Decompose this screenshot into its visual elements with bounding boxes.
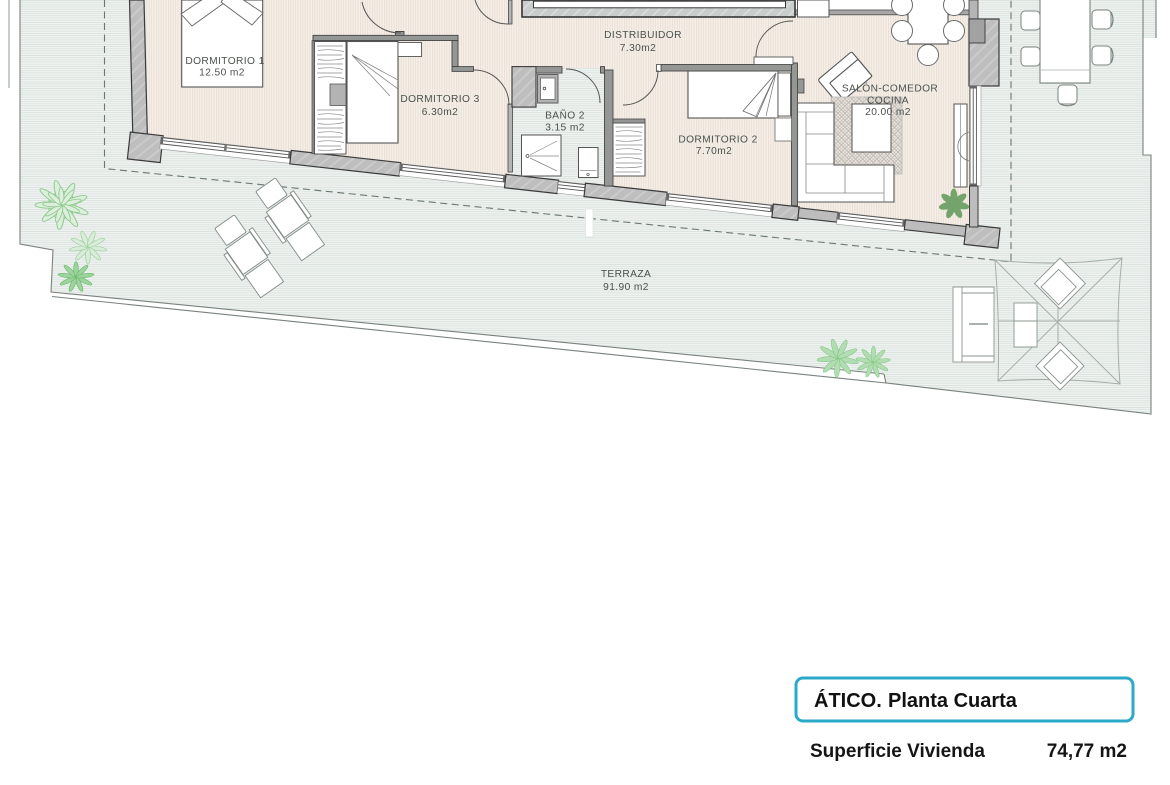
svg-text:DISTRIBUIDOR: DISTRIBUIDOR <box>604 30 682 41</box>
svg-text:ÁTICO.: ÁTICO. <box>814 689 882 712</box>
svg-text:91.90 m2: 91.90 m2 <box>603 282 649 293</box>
svg-text:7.30m2: 7.30m2 <box>620 43 656 54</box>
svg-text:SALÓN-COMEDOR: SALÓN-COMEDOR <box>842 82 938 95</box>
svg-text:BAÑO 2: BAÑO 2 <box>545 109 585 122</box>
svg-text:3.15 m2: 3.15 m2 <box>545 123 585 134</box>
svg-text:DORMITORIO 1: DORMITORIO 1 <box>185 56 264 67</box>
svg-text:20.00 m2: 20.00 m2 <box>865 107 911 118</box>
svg-text:74,77 m2: 74,77 m2 <box>1047 741 1127 762</box>
svg-text:DORMITORIO 2: DORMITORIO 2 <box>678 135 757 146</box>
svg-text:DORMITORIO 3: DORMITORIO 3 <box>400 94 479 105</box>
svg-text:Planta Cuarta: Planta Cuarta <box>888 690 1018 712</box>
svg-text:Superficie Vivienda: Superficie Vivienda <box>810 741 985 762</box>
svg-text:12.50 m2: 12.50 m2 <box>199 68 245 79</box>
svg-text:6.30m2: 6.30m2 <box>422 107 458 118</box>
svg-text:COCINA: COCINA <box>867 96 909 107</box>
svg-text:7.70m2: 7.70m2 <box>696 146 732 157</box>
svg-text:TERRAZA: TERRAZA <box>601 269 651 280</box>
